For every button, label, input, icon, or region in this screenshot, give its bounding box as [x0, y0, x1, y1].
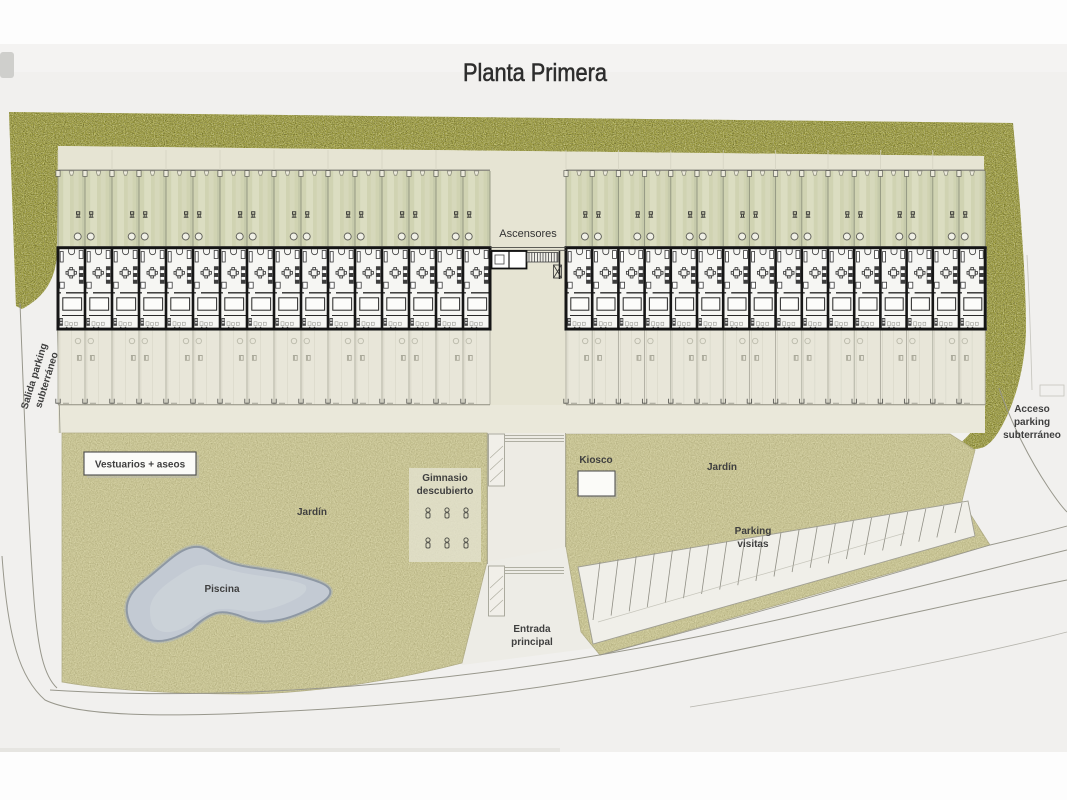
- svg-text:Planta Primera: Planta Primera: [463, 59, 607, 87]
- svg-text:Jardín: Jardín: [707, 462, 737, 473]
- svg-text:descubierto: descubierto: [417, 486, 474, 497]
- svg-text:Acceso: Acceso: [1014, 404, 1050, 415]
- svg-text:subterráneo: subterráneo: [1003, 430, 1061, 441]
- svg-text:Parking: Parking: [735, 526, 772, 537]
- svg-text:Kiosco: Kiosco: [579, 455, 612, 466]
- svg-text:Gimnasio: Gimnasio: [422, 473, 468, 484]
- svg-text:visitas: visitas: [737, 539, 769, 550]
- svg-text:Vestuarios + aseos: Vestuarios + aseos: [95, 460, 186, 471]
- svg-text:Jardín: Jardín: [297, 507, 327, 518]
- svg-text:Ascensores: Ascensores: [499, 228, 557, 240]
- svg-text:principal: principal: [511, 637, 553, 648]
- svg-text:Entrada: Entrada: [513, 624, 551, 635]
- svg-text:Piscina: Piscina: [204, 584, 239, 595]
- svg-text:parking: parking: [1014, 417, 1050, 428]
